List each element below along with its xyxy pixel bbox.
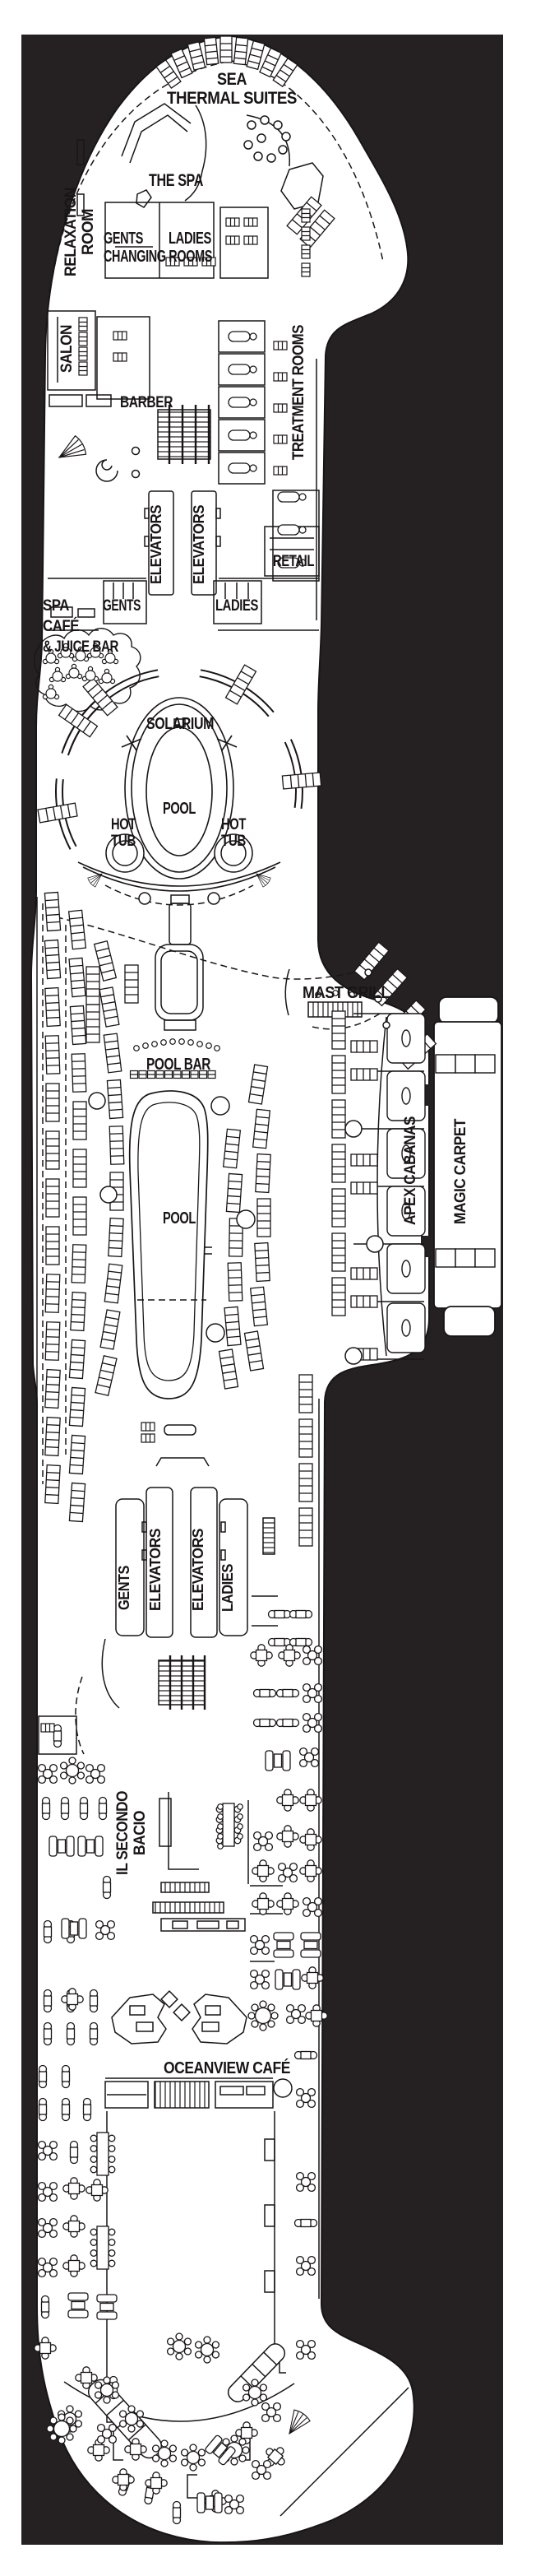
label-il-secondo-bacio-1: IL SECONDO bbox=[114, 1791, 132, 1875]
label-spa-cafe-1: SPA bbox=[43, 597, 70, 615]
label-elevators-lower-1: ELEVATORS bbox=[147, 1529, 164, 1611]
deck-plan-canvas: SEA THERMAL SUITES THE SPA RELAXATION RO… bbox=[0, 0, 559, 2576]
label-sea-thermal-suites-2: THERMAL SUITES bbox=[167, 89, 297, 108]
label-ladies-lower: LADIES bbox=[219, 1564, 236, 1612]
label-pool-solarium: POOL bbox=[163, 800, 196, 818]
label-hot-tub-right-1: HOT bbox=[221, 816, 247, 833]
label-magic-carpet: MAGIC CARPET bbox=[452, 1118, 469, 1224]
label-changing-ladies: LADIES bbox=[169, 230, 211, 248]
label-changing-rooms: CHANGING ROOMS bbox=[104, 248, 212, 266]
label-hot-tub-left-2: TUB bbox=[111, 833, 136, 850]
label-ladies-top: LADIES bbox=[215, 597, 258, 615]
label-mast-grill: MAST GRILL bbox=[303, 984, 390, 1002]
label-treatment-rooms: TREATMENT ROOMS bbox=[290, 325, 307, 460]
label-pool-bar: POOL BAR bbox=[146, 1056, 211, 1074]
label-relaxation-room-2: ROOM bbox=[80, 209, 97, 255]
label-oceanview-cafe: OCEANVIEW CAFÉ bbox=[164, 2058, 290, 2077]
label-changing-gents: GENTS bbox=[104, 230, 143, 248]
deck-plan-page: SEA THERMAL SUITES THE SPA RELAXATION RO… bbox=[0, 0, 559, 2576]
label-pool-main: POOL bbox=[163, 1209, 196, 1228]
label-solarium: SOLARIUM bbox=[146, 715, 214, 733]
label-spa-cafe-2: CAFÉ bbox=[43, 617, 79, 635]
label-gents-lower: GENTS bbox=[116, 1566, 132, 1610]
label-elevators-lower-2: ELEVATORS bbox=[190, 1529, 206, 1611]
label-gents-top: GENTS bbox=[103, 597, 141, 615]
label-apex-cabanas: APEX CABANAS bbox=[402, 1116, 419, 1225]
label-retail: RETAIL bbox=[273, 553, 315, 570]
label-barber: BARBER bbox=[120, 394, 173, 411]
label-elevators-top-1: ELEVATORS bbox=[148, 505, 164, 584]
label-relaxation-room-1: RELAXATION bbox=[62, 188, 80, 276]
label-elevators-top-2: ELEVATORS bbox=[191, 505, 207, 584]
label-hot-tub-left-1: HOT bbox=[111, 816, 136, 833]
label-il-secondo-bacio-2: BACIO bbox=[132, 1811, 149, 1855]
label-salon: SALON bbox=[58, 325, 76, 373]
label-spa-cafe-3: & JUICE BAR bbox=[43, 638, 119, 656]
label-sea-thermal-suites-1: SEA bbox=[217, 70, 247, 89]
label-the-spa: THE SPA bbox=[149, 171, 203, 190]
label-hot-tub-right-2: TUB bbox=[221, 833, 246, 850]
